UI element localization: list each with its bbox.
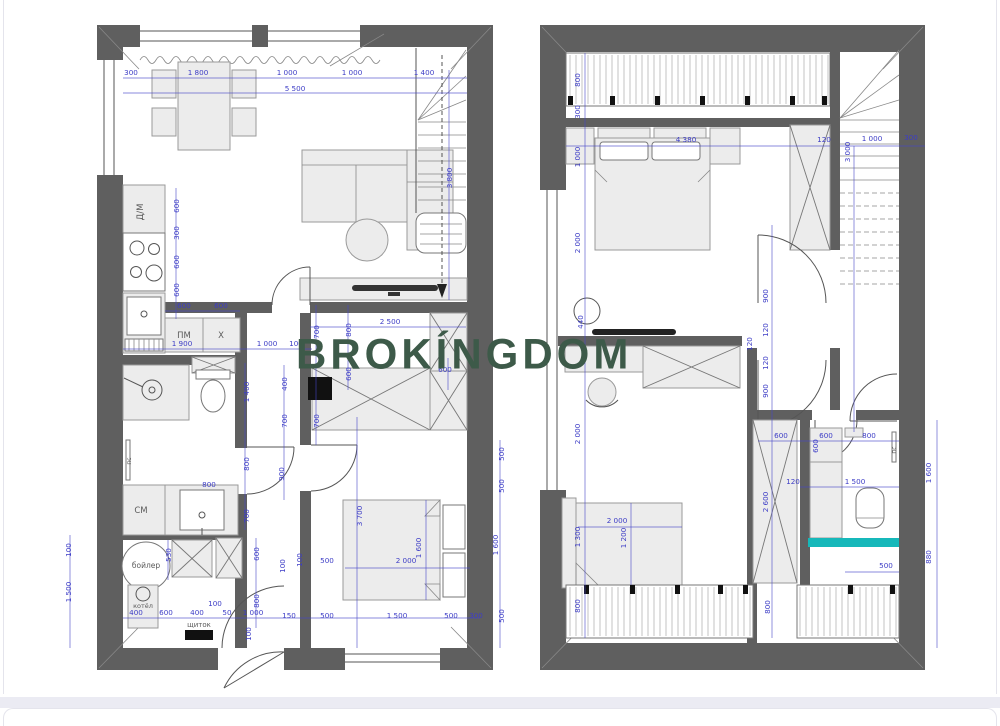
dimension-label: 1 500 [845,477,866,486]
toilet [856,488,884,528]
chair [152,70,176,98]
dimension-label: 500 [497,479,506,493]
listing-photo-card[interactable]: Д/МПМХпсСМбойлеркотёлщиток 3001 8001 000… [0,0,1000,726]
dimension-label: 1 600 [491,534,500,555]
chair [232,108,256,136]
boiler-room [122,538,242,640]
dimension-label: 600 [252,547,261,561]
dimension-label: 900 [277,467,286,481]
room-label: Х [218,331,224,341]
dimension-label: 300 [469,611,483,620]
dimension-label: 500 [497,609,506,623]
dimension-label: 400 [190,608,204,617]
dimension-label: 300 [904,133,918,142]
room-label: бойлер [132,561,160,570]
dimension-label: 2 500 [380,317,401,326]
dimension-label: 800 [862,431,876,440]
dimension-label: 600 [177,301,191,310]
room-label: щиток [187,621,211,629]
chair [152,108,176,136]
dimension-label: 1 400 [242,381,251,402]
dimension-label: 600 [819,431,833,440]
dimension-label: 120 [817,135,831,144]
bath-cabinet [810,462,842,538]
dimension-label: 4 380 [676,135,697,144]
room-label: СМ [134,506,147,516]
dimension-label: 3 000 [843,141,852,162]
dimension-label: 500 [879,561,893,570]
dimension-label: 700 [280,414,289,428]
dimension-label: 400 [129,608,143,617]
dimension-label: 1 000 [243,608,264,617]
tv [352,285,438,291]
dimension-label: 120 [761,323,770,337]
dimension-label: 900 [761,289,770,303]
dimension-label: 3 700 [355,505,364,526]
dimension-label: 600 [172,283,181,297]
chair [232,70,256,98]
dimension-label: 1 800 [188,68,209,77]
dimension-label: 120 [761,356,770,370]
dimension-label: 500 [320,611,334,620]
dimension-label: 800 [242,457,251,471]
dimension-label: 1 300 [573,526,582,547]
dimension-label: 600 [159,608,173,617]
stairs-up [840,50,899,284]
dimension-label: 120 [745,337,754,351]
toilet [196,370,230,412]
kitchen-sink [127,297,161,335]
dimension-label: 700 [242,509,251,523]
dimension-label: 120 [786,477,800,486]
dimension-label: 1 000 [342,68,363,77]
dimension-label: 900 [761,384,770,398]
electric-panel [185,630,213,640]
pillow [443,553,465,597]
pillow [652,142,700,160]
dimension-label: 100 [208,599,222,608]
dimension-label: 500 [444,611,458,620]
shaft [308,377,332,400]
dimension-label: 100 [278,559,287,573]
dimension-label: 500 [320,556,334,565]
dimension-label: 1 000 [573,146,582,167]
dimension-label: 2 000 [573,232,582,253]
pillow [600,142,648,160]
dimension-label: 100 [64,543,73,557]
dimension-label: 880 [924,550,933,564]
dimension-label: 1 600 [924,462,933,483]
dimension-label: 800 [763,600,772,614]
dimension-label: 1 200 [619,527,628,548]
dimension-label: 150 [282,611,296,620]
dimension-label: 1 000 [862,134,883,143]
single-bed [576,503,682,585]
dimension-label: 1 000 [277,68,298,77]
dimension-label: 800 [252,594,261,608]
dimension-label: 700 [312,414,321,428]
dimension-label: 600 [811,439,820,453]
dimension-label: 800 [573,73,582,87]
desk-chair [588,378,616,406]
dimension-label: 1 500 [64,581,73,602]
dimension-label: 1 900 [172,339,193,348]
room-label: пс [126,457,133,464]
pillow [443,505,465,549]
next-card-top [3,708,997,726]
stove [123,233,165,291]
dimension-label: 300 [172,226,181,240]
dimension-label: 1 500 [387,611,408,620]
dimension-label: 2 000 [573,423,582,444]
wash-sink [180,490,224,530]
dimension-label: 1 400 [414,68,435,77]
dimension-label: 1 000 [257,339,278,348]
dimension-label: 100 [244,627,253,641]
teal-counter [808,538,899,547]
dimension-label: 50 [222,608,232,617]
dimension-label: 500 [497,447,506,461]
dimension-label: 3 800 [445,167,454,188]
room-label: Д/М [136,204,146,221]
dimension-label: 300 [124,68,138,77]
coffee-table [346,219,388,261]
dimension-label: 2 600 [761,491,770,512]
dimension-label: 440 [576,315,585,329]
room-label: пс [891,446,898,453]
dimension-label: 600 [774,431,788,440]
dimension-label: 400 [280,377,289,391]
dimension-label: 800 [573,599,582,613]
bedroom-2 [566,125,830,324]
dimension-label: 2 000 [607,516,628,525]
dimension-label: 530 [164,548,173,562]
dimension-label: 100 [295,553,304,567]
dimension-label: 600 [172,255,181,269]
dimension-label: 600 [172,199,181,213]
dimension-label: 800 [202,480,216,489]
loft-railing-bottom [566,585,899,638]
dimension-label: 5 500 [285,84,306,93]
dimension-label: 600 [214,301,228,310]
dimension-label: 1 600 [414,537,423,558]
dimension-label: 300 [573,105,582,119]
shower-tray [123,365,189,420]
watermark: BROKÍNGDOM [296,330,706,379]
